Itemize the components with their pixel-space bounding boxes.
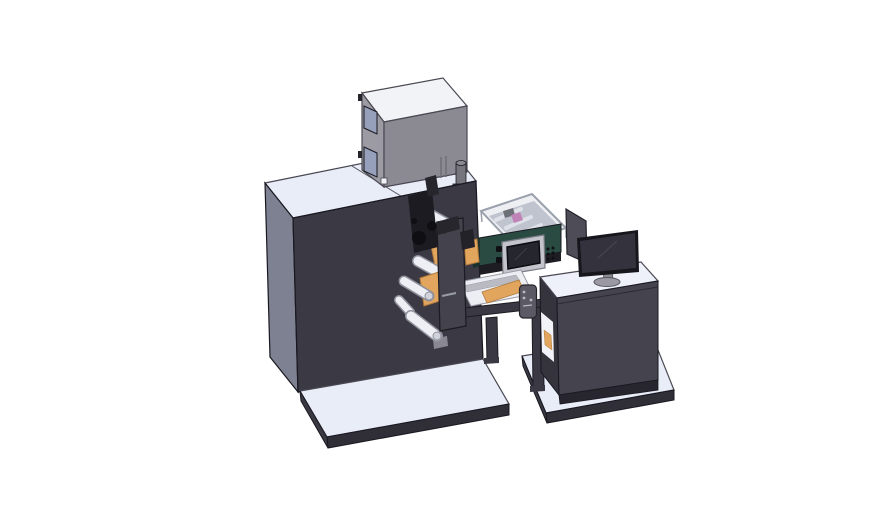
cover-corner-edge-1 — [481, 211, 482, 222]
pendant-button[interactable] — [523, 291, 526, 294]
top-box-port-cylinder-top — [456, 161, 466, 166]
top-box-white-square — [381, 178, 387, 184]
printhead-hub-large — [412, 231, 426, 245]
stand-leg-left — [486, 317, 498, 361]
hmi-button[interactable] — [547, 258, 550, 261]
printhead-pin — [411, 218, 417, 224]
hmi-button[interactable] — [552, 257, 555, 260]
pendant-button[interactable] — [523, 297, 526, 300]
machine-render — [0, 0, 888, 522]
roller-2-end-cap — [425, 292, 433, 300]
hmi-button[interactable] — [552, 252, 555, 255]
hmi-button[interactable] — [552, 247, 555, 250]
top-box-hinge-tab-upper — [358, 94, 362, 101]
pendant-remote[interactable] — [520, 285, 537, 318]
hmi-button[interactable] — [547, 248, 550, 251]
monitor-stand-base — [594, 278, 620, 287]
hmi-button[interactable] — [547, 253, 550, 256]
pendant-button[interactable] — [530, 299, 533, 302]
printhead-bracket-right — [460, 229, 475, 250]
cad-viewport — [0, 0, 888, 522]
roller-4-end-cap — [433, 332, 441, 340]
printhead-hub-small — [427, 221, 437, 231]
hmi-side-button-upper[interactable] — [496, 246, 502, 252]
stand-foot-right — [530, 385, 545, 392]
stand-foot-left — [484, 357, 499, 364]
top-box-hinge-tab-lower — [358, 151, 362, 158]
desk-front — [557, 281, 658, 395]
hmi-side-button-lower[interactable] — [496, 257, 502, 263]
